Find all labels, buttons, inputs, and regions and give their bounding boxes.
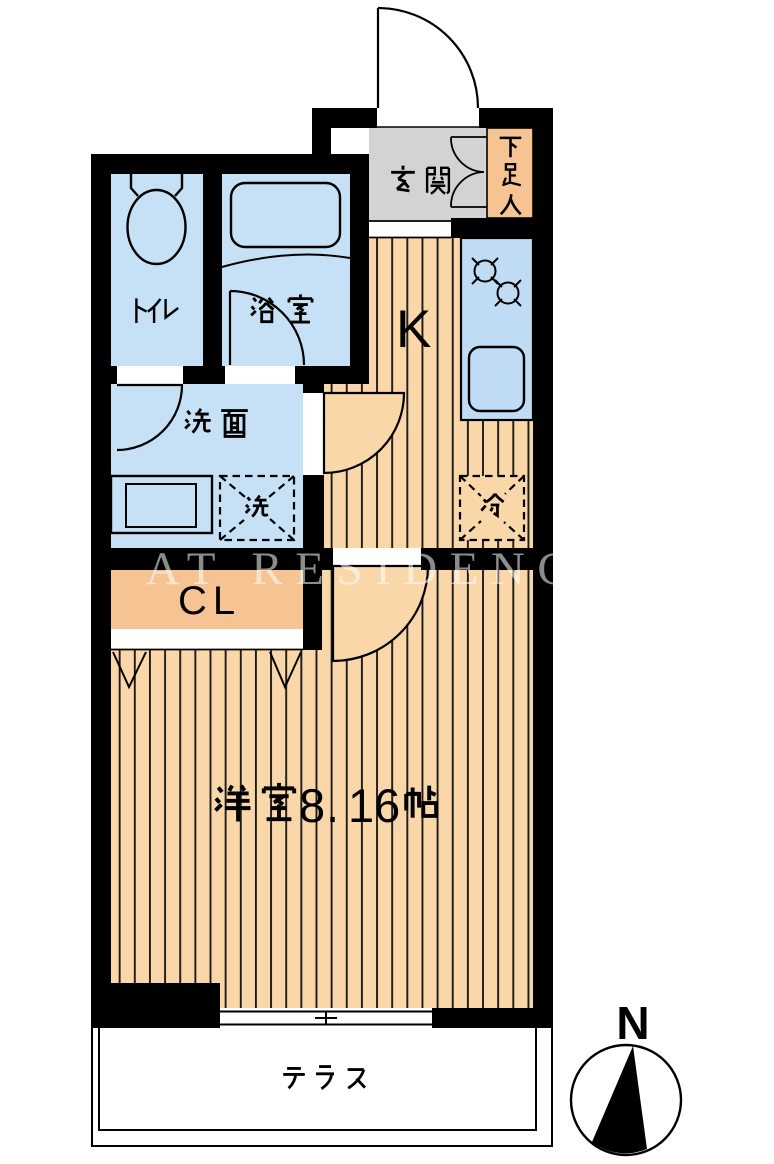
svg-text:8: 8 [299, 779, 325, 832]
svg-text:K: K [396, 300, 431, 359]
svg-text:.: . [326, 779, 339, 832]
svg-text:N: N [616, 997, 649, 1049]
svg-text:AT RESIDENCE: AT RESIDENCE [146, 543, 623, 595]
svg-text:16: 16 [348, 779, 400, 832]
